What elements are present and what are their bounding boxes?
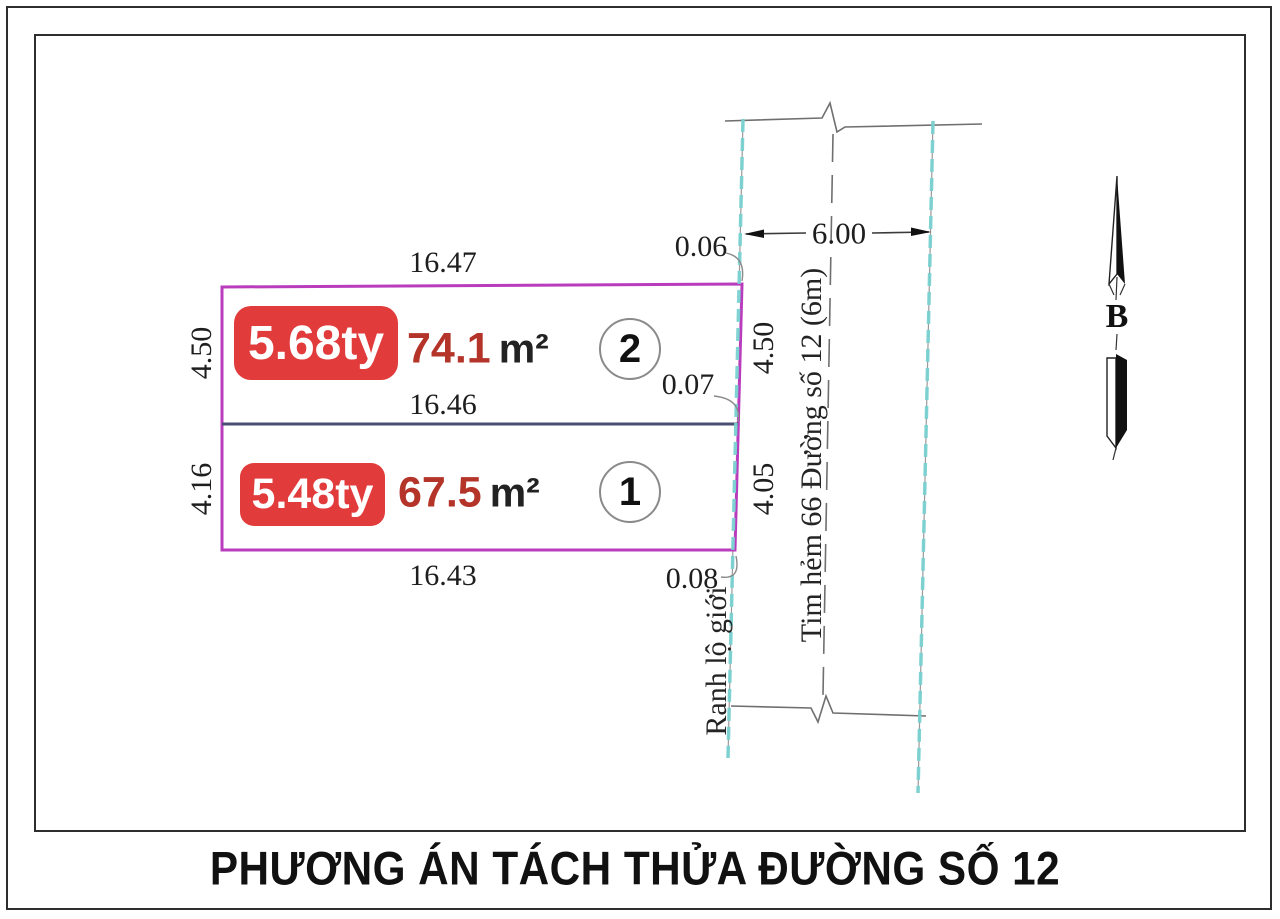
north-arrow-tail-left	[1107, 358, 1116, 448]
price-badge-lot-2: 5.68ty	[234, 306, 398, 380]
north-arrow-link	[1116, 334, 1117, 350]
road-width-arrow-left	[744, 230, 764, 239]
sheet-title: PHƯƠNG ÁN TÁCH THỬA ĐƯỜNG SỐ 12	[210, 841, 1060, 896]
survey-drawing-sheet: 16.47 16.46 16.43 4.50 4.16 4.50 4.05 0.…	[0, 0, 1280, 919]
lot-number-circle-2: 2	[599, 318, 661, 380]
offset-bottom-leader	[721, 556, 737, 577]
lot-number-2: 2	[619, 327, 641, 372]
dim-right-top-4-50: 4.50	[749, 322, 779, 375]
north-arrow-tail-right	[1116, 354, 1127, 448]
dim-left-top-4-50: 4.50	[187, 327, 217, 380]
area-value-lot-1: 67.5	[398, 472, 482, 515]
dim-middle-16-46: 16.46	[409, 390, 477, 420]
area-lot-2: 74.1 m²	[407, 328, 549, 371]
area-value-lot-2: 74.1	[407, 328, 491, 371]
road-width-arrow-right	[911, 228, 931, 237]
north-letter: B	[1106, 298, 1129, 336]
price-lot-1: 5.48ty	[252, 470, 374, 519]
dim-left-bottom-4-16: 4.16	[187, 463, 217, 516]
north-arrow-spike-right	[1117, 176, 1125, 284]
dim-bottom-16-43: 16.43	[409, 561, 477, 591]
price-badge-lot-1: 5.48ty	[240, 463, 385, 526]
road-centerline-label: Tim hẻm 66 Đường số 12 (6m)	[797, 268, 827, 642]
dim-right-bottom-4-05: 4.05	[749, 463, 779, 516]
north-arrow-spike-left	[1109, 176, 1117, 284]
road-boundary-label: Ranh lộ giới	[702, 586, 732, 735]
road-bottom-limit-line	[731, 696, 926, 722]
area-unit-lot-2: m²	[499, 329, 549, 370]
lot-number-circle-1: 1	[599, 461, 661, 523]
offset-top-label: 0.06	[675, 232, 728, 262]
north-arrow-tail-tip	[1113, 448, 1116, 460]
price-lot-2: 5.68ty	[248, 316, 384, 371]
area-unit-lot-1: m²	[490, 473, 540, 514]
offset-middle-label: 0.07	[662, 370, 715, 400]
road-width-label: 6.00	[812, 218, 866, 249]
lot-number-1: 1	[619, 470, 641, 515]
road-top-limit-line	[725, 103, 982, 132]
area-lot-1: 67.5 m²	[398, 472, 540, 515]
drawing-linework	[0, 0, 1280, 919]
dim-top-16-47: 16.47	[409, 248, 477, 278]
